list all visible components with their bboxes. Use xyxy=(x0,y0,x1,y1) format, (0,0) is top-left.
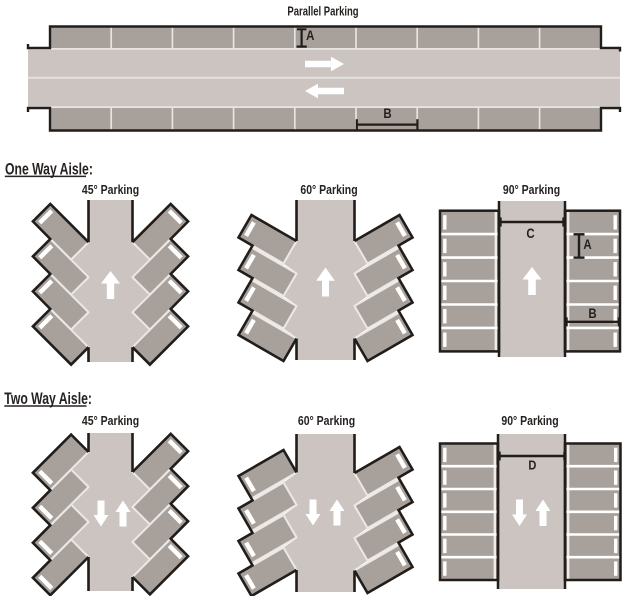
svg-text:45° Parking: 45° Parking xyxy=(82,415,139,428)
svg-text:D: D xyxy=(528,458,536,473)
svg-text:60° Parking: 60° Parking xyxy=(298,415,355,428)
svg-text:90° Parking: 90° Parking xyxy=(503,184,560,197)
svg-text:B: B xyxy=(383,106,391,121)
svg-text:90° Parking: 90° Parking xyxy=(501,415,558,428)
svg-text:B: B xyxy=(588,306,596,321)
svg-text:60° Parking: 60° Parking xyxy=(300,184,357,197)
svg-text:A: A xyxy=(583,237,591,252)
svg-text:A: A xyxy=(306,28,314,43)
svg-text:45° Parking: 45° Parking xyxy=(82,184,139,197)
svg-text:C: C xyxy=(526,226,534,241)
svg-text:Parallel Parking: Parallel Parking xyxy=(287,5,358,19)
